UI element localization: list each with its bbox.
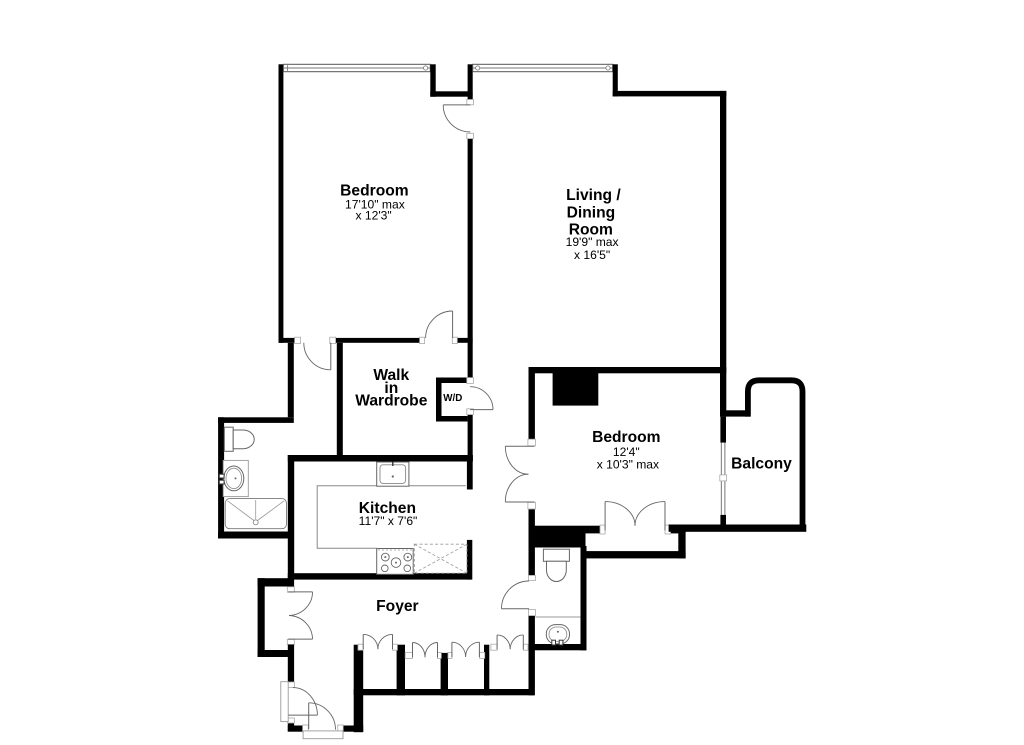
svg-text:Dining: Dining (567, 204, 616, 221)
svg-text:Foyer: Foyer (376, 598, 418, 615)
svg-text:Wardrobe: Wardrobe (355, 393, 428, 410)
svg-text:Bedroom: Bedroom (592, 429, 660, 446)
svg-text:x 10'3" max: x 10'3" max (597, 458, 659, 472)
svg-text:Balcony: Balcony (731, 456, 792, 473)
svg-text:x 16'5": x 16'5" (574, 248, 610, 262)
svg-text:W/D: W/D (443, 393, 462, 404)
svg-text:x 12'3": x 12'3" (356, 209, 392, 223)
svg-text:Living /: Living / (566, 187, 621, 204)
svg-text:11'7" x 7'6": 11'7" x 7'6" (359, 514, 418, 528)
